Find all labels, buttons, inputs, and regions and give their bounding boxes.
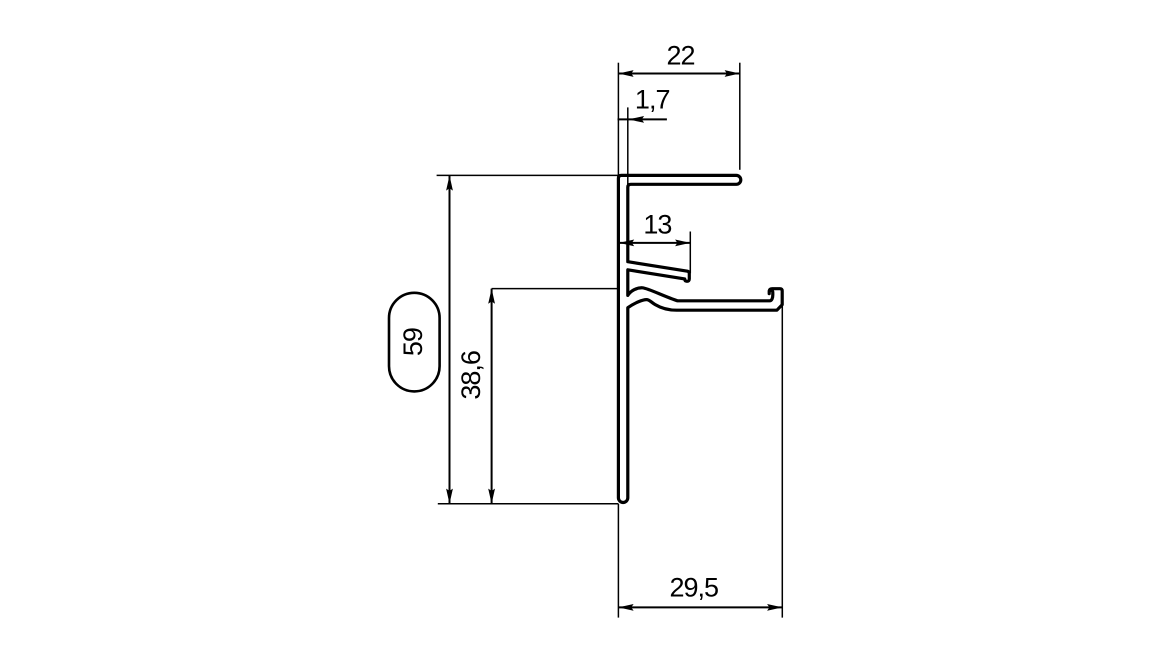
svg-text:38,6: 38,6 [456,351,486,400]
svg-text:29,5: 29,5 [670,573,719,603]
svg-text:1,7: 1,7 [635,85,670,115]
svg-text:59: 59 [398,328,428,356]
svg-text:22: 22 [666,40,694,70]
svg-text:13: 13 [643,209,671,239]
